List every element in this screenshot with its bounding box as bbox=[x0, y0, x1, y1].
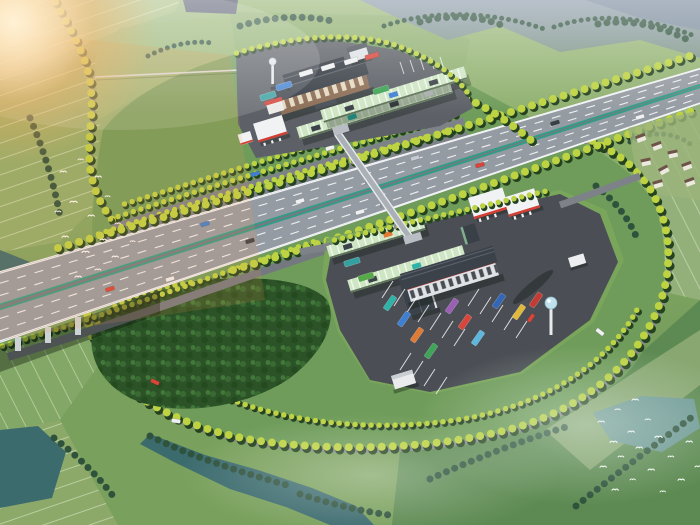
aerial-rendering-stage bbox=[0, 0, 700, 525]
bridge-pier bbox=[15, 337, 21, 351]
service-area-aerial-rendering bbox=[0, 0, 700, 525]
